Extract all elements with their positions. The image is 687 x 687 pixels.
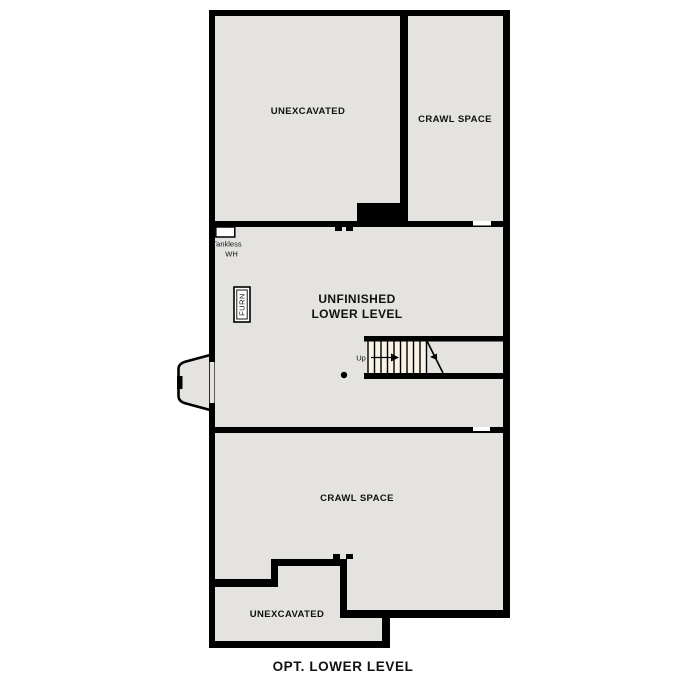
wall-step-right-vertical — [340, 559, 347, 617]
wall-step-left-horizontal — [209, 579, 278, 587]
label-lower-level-line1: UNFINISHED — [318, 292, 395, 306]
room-fills — [215, 16, 503, 641]
wall-post-d — [346, 554, 353, 559]
wall-lower-crawl-bottom — [340, 610, 510, 618]
label-bottom-unexcavated: UNEXCAVATED — [250, 609, 325, 620]
stair-wall-top — [364, 336, 503, 342]
floorplan-drawing: UNEXCAVATED CRAWL SPACE UNFINISHED LOWER… — [0, 0, 687, 687]
label-upper-unexcavated: UNEXCAVATED — [271, 106, 346, 117]
label-lower-level-line2: LOWER LEVEL — [311, 307, 402, 321]
window-upper-wall — [473, 221, 491, 226]
wall-upper-section-bottom — [209, 221, 510, 227]
stair-wall-bottom — [364, 373, 503, 379]
label-stairs-up: Up — [356, 354, 366, 363]
label-tankless-line1: Tankless — [212, 240, 241, 249]
label-upper-crawl-space: CRAWL SPACE — [418, 114, 492, 125]
window-middle-wall — [473, 427, 490, 431]
structural-post-dot — [341, 372, 347, 378]
label-lower-crawl-space: CRAWL SPACE — [320, 493, 394, 504]
wall-middle-section-bottom — [209, 427, 510, 433]
wall-divider-top-rooms — [400, 10, 408, 221]
bay-window-opening — [210, 362, 215, 403]
middle-section-floor — [215, 227, 503, 427]
wall-right — [503, 10, 510, 618]
plan-caption: OPT. LOWER LEVEL — [273, 659, 414, 674]
wall-post-c — [333, 554, 340, 559]
wall-unexcavated-bottom — [209, 641, 390, 648]
wall-post-b — [346, 227, 353, 231]
label-tankless-line2: WH — [225, 250, 238, 259]
wall-top — [209, 10, 510, 16]
floorplan-page: UNEXCAVATED CRAWL SPACE UNFINISHED LOWER… — [0, 0, 687, 687]
bay-window-mullion — [177, 376, 183, 389]
chimney-block — [357, 203, 402, 221]
wall-step-top-horizontal — [271, 559, 347, 566]
tankless-water-heater-icon — [216, 227, 235, 237]
label-furnace: FURN — [238, 293, 247, 316]
wall-left — [209, 10, 215, 648]
bay-window — [177, 355, 212, 411]
wall-post-a — [335, 227, 342, 231]
